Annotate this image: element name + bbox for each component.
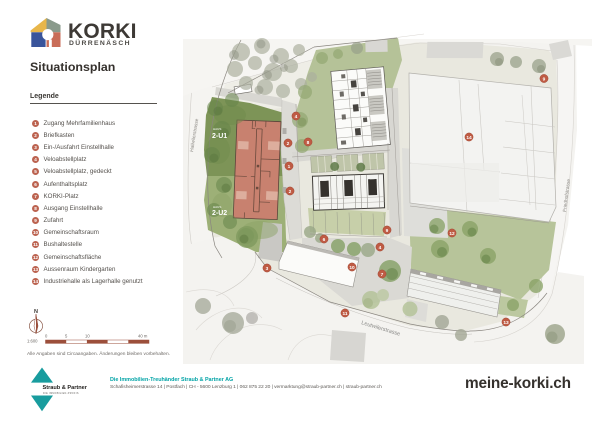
- svg-text:10: 10: [349, 265, 355, 271]
- svg-text:1:600: 1:600: [27, 339, 38, 344]
- svg-text:10: 10: [85, 334, 90, 339]
- svg-text:DIE IMMOBILIEN-PROFIS: DIE IMMOBILIEN-PROFIS: [43, 392, 79, 395]
- svg-text:12: 12: [449, 231, 455, 237]
- svg-text:4: 4: [295, 114, 298, 120]
- svg-text:9: 9: [386, 228, 389, 234]
- svg-text:40 m: 40 m: [138, 334, 148, 339]
- svg-text:2-U2: 2-U2: [212, 210, 227, 217]
- svg-text:HAUS: HAUS: [213, 205, 221, 209]
- svg-text:HAUS: HAUS: [213, 127, 221, 131]
- svg-text:Straub & Partner: Straub & Partner: [43, 385, 88, 391]
- svg-text:0: 0: [45, 334, 48, 339]
- svg-text:6: 6: [323, 237, 326, 243]
- svg-text:8: 8: [307, 140, 310, 146]
- svg-text:2: 2: [287, 141, 290, 147]
- svg-text:7: 7: [381, 272, 384, 278]
- svg-text:14: 14: [466, 135, 472, 141]
- svg-text:9: 9: [543, 76, 546, 82]
- svg-text:3: 3: [266, 266, 269, 272]
- svg-text:2: 2: [289, 189, 292, 195]
- svg-text:11: 11: [342, 311, 347, 317]
- svg-text:1: 1: [288, 164, 291, 170]
- svg-text:4: 4: [379, 245, 382, 251]
- svg-text:13: 13: [503, 320, 509, 326]
- svg-text:2-U1: 2-U1: [212, 133, 227, 140]
- svg-text:5: 5: [65, 334, 68, 339]
